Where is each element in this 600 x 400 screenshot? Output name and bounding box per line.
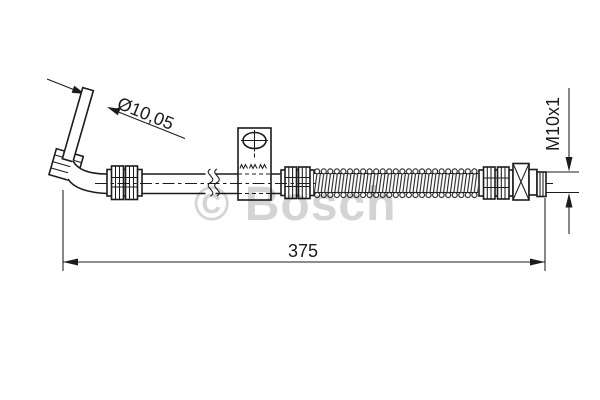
dimension-arrow-right: [530, 259, 545, 266]
end-fitting-male-thread: [513, 164, 546, 201]
threaded-stub: [537, 172, 546, 197]
diameter-dimension: Ø10,05: [107, 93, 185, 138]
length-label: 375: [288, 241, 318, 261]
thread-label: M10x1: [543, 97, 563, 151]
dimension-arrow-up: [566, 193, 573, 208]
thread-dimension: M10x1: [543, 88, 579, 234]
bosch-watermark: © Bosch: [194, 178, 396, 231]
crimp-sleeve-right: [479, 167, 513, 199]
crimp-sleeve-left: [107, 166, 142, 200]
angled-tube-fitting: [49, 85, 107, 194]
dimension-arrow-down: [566, 157, 573, 172]
metal-tube: [62, 88, 93, 162]
brake-hose-technical-drawing: Ø10,05: [0, 0, 600, 400]
drawing-svg: Ø10,05: [0, 0, 600, 400]
diameter-label: Ø10,05: [115, 93, 177, 134]
elbow: [66, 160, 107, 194]
pointer-arrow: [47, 79, 85, 94]
dimension-arrow-left: [63, 259, 78, 266]
